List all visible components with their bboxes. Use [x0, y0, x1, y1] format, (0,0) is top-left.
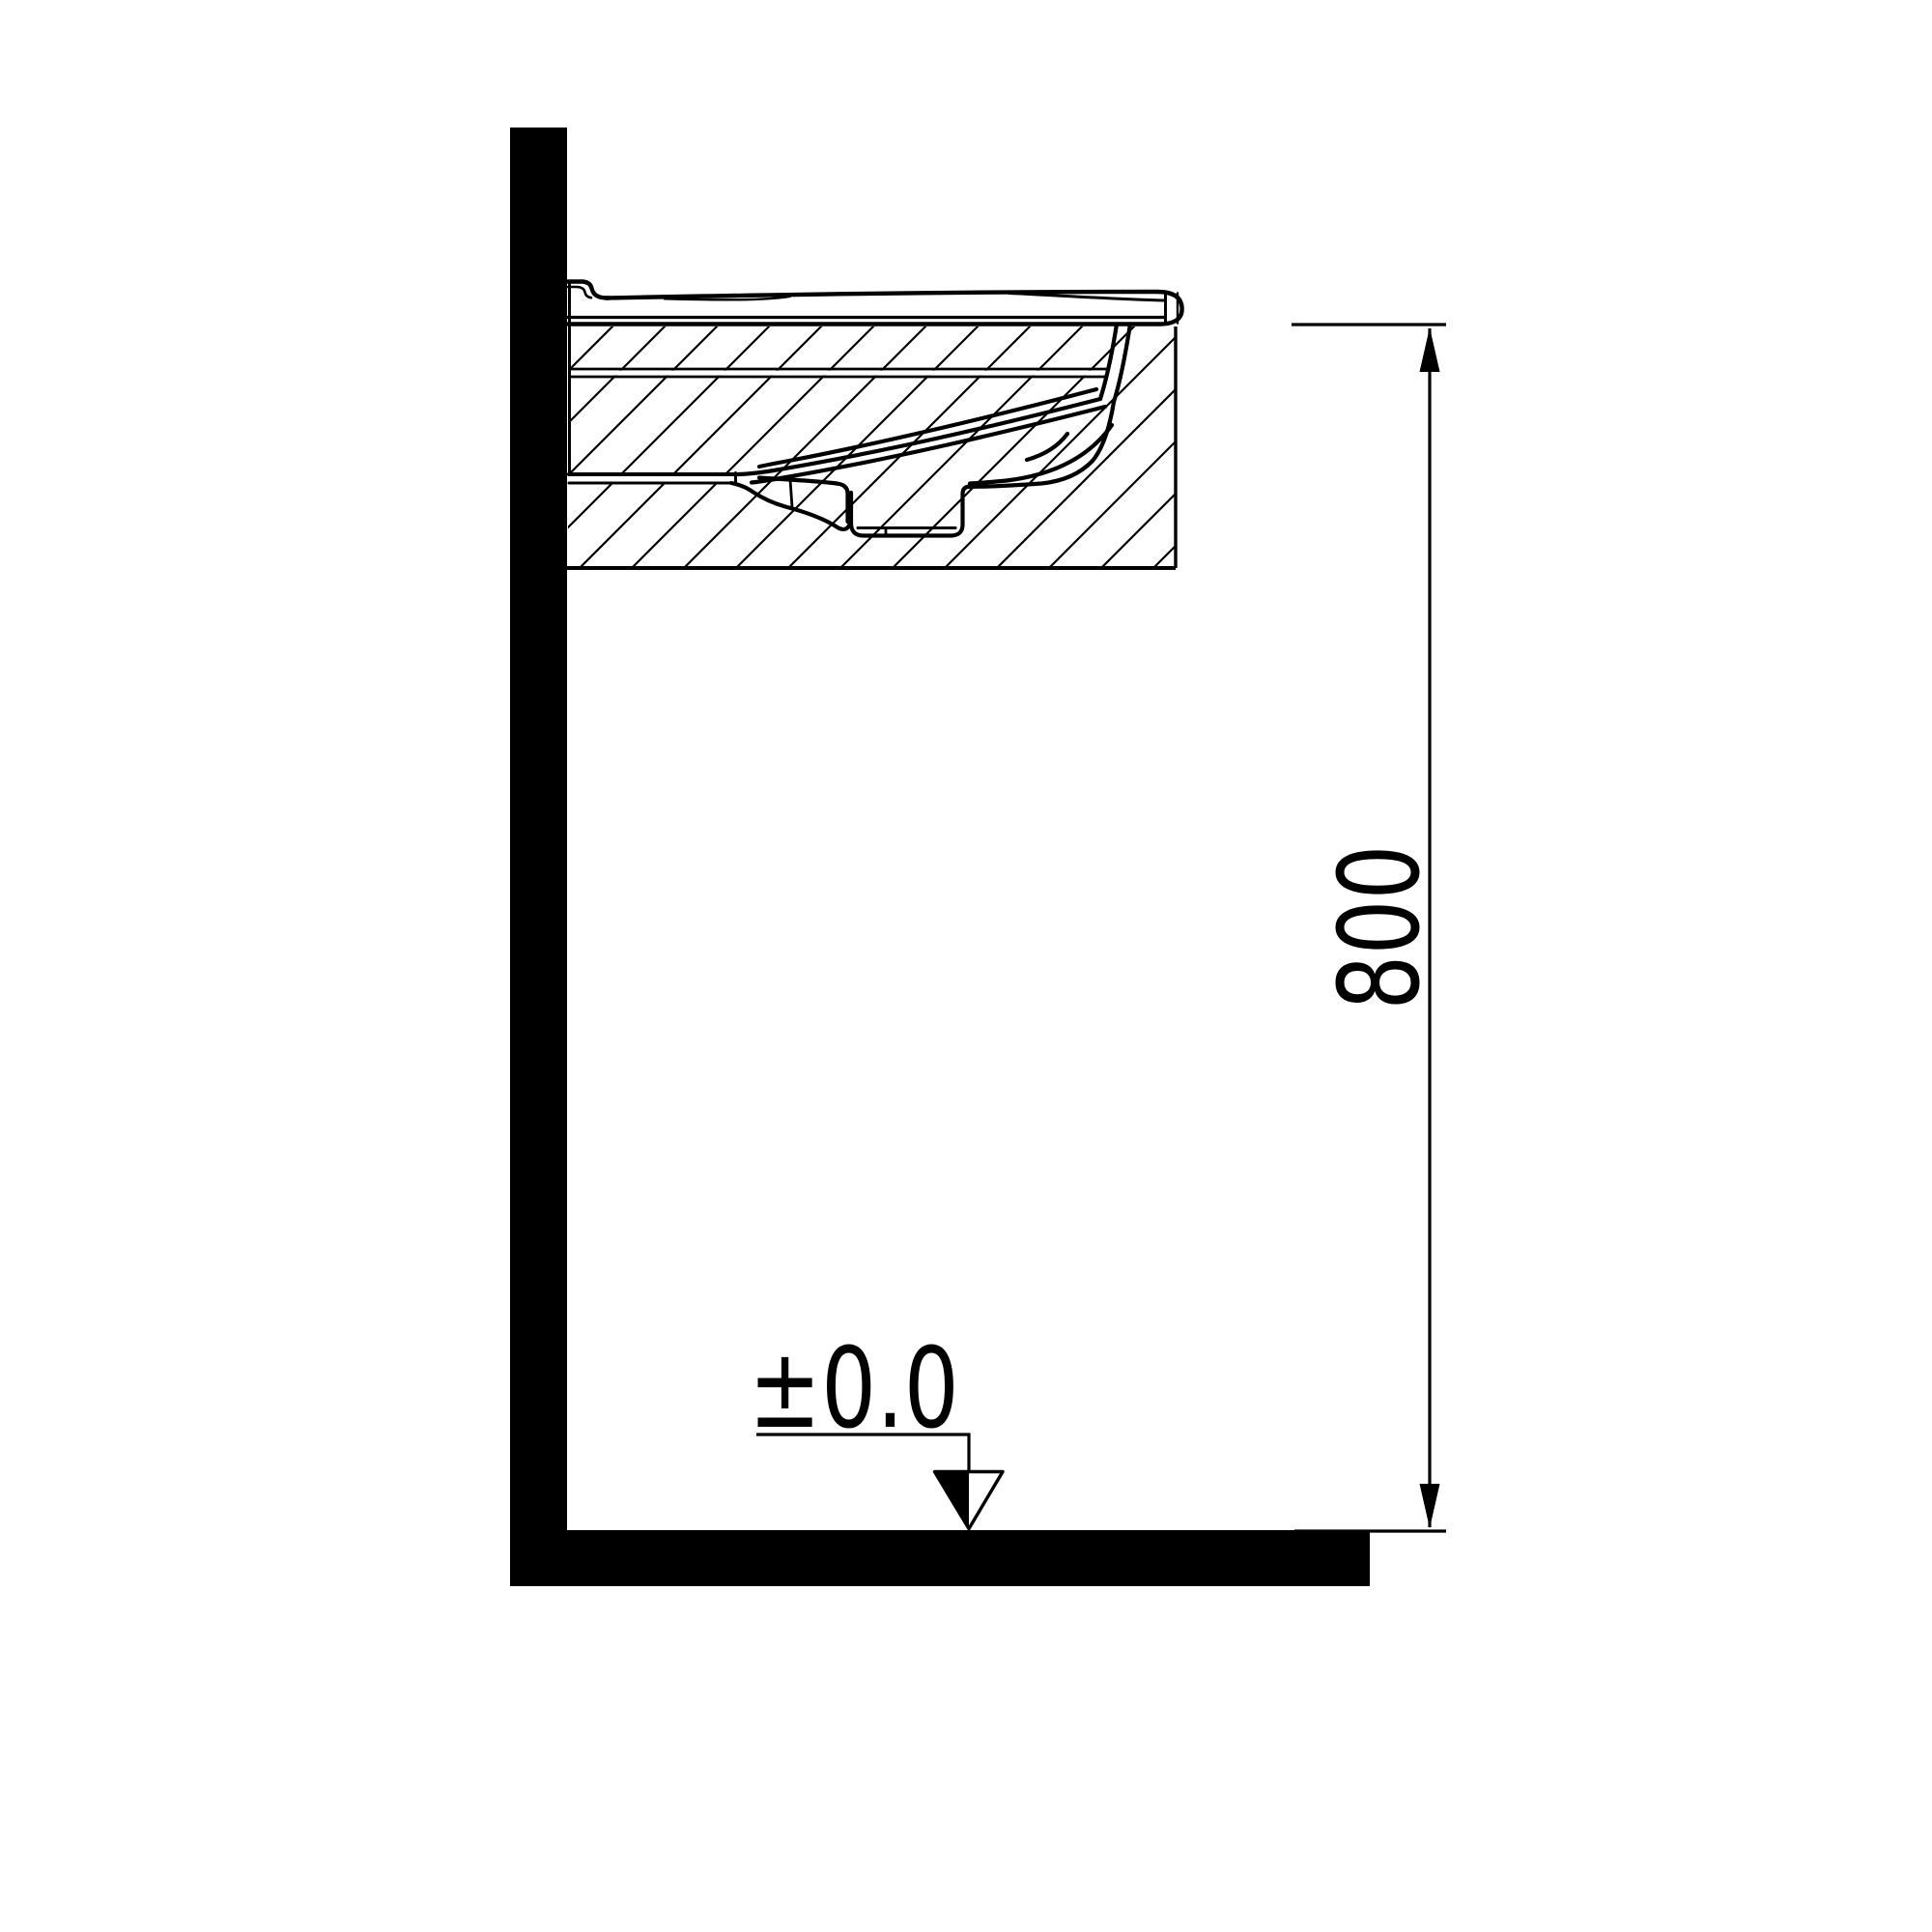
height-dimension-label: 800	[1316, 844, 1445, 1009]
dimension-arrow-down-icon	[1420, 1484, 1440, 1528]
datum-marker: ±0.0	[749, 1324, 1003, 1528]
technical-drawing: 800 ±0.0	[0, 0, 1932, 1932]
board-band-gap	[568, 371, 1106, 376]
technical-drawing-canvas: 800 ±0.0	[0, 0, 1932, 1932]
overflow-connector-tick	[790, 480, 792, 508]
bowl-band-gap	[568, 476, 732, 482]
deck-inner-top-line	[1009, 294, 1165, 301]
wall-section	[510, 128, 567, 1586]
height-dimension: 800	[1292, 325, 1446, 1531]
hatch-fill	[568, 327, 1176, 568]
floor-section	[510, 1530, 1370, 1586]
back-lip-inner	[568, 287, 591, 298]
countertop-hatch-block	[567, 327, 1176, 568]
dimension-arrow-up-icon	[1420, 327, 1440, 372]
